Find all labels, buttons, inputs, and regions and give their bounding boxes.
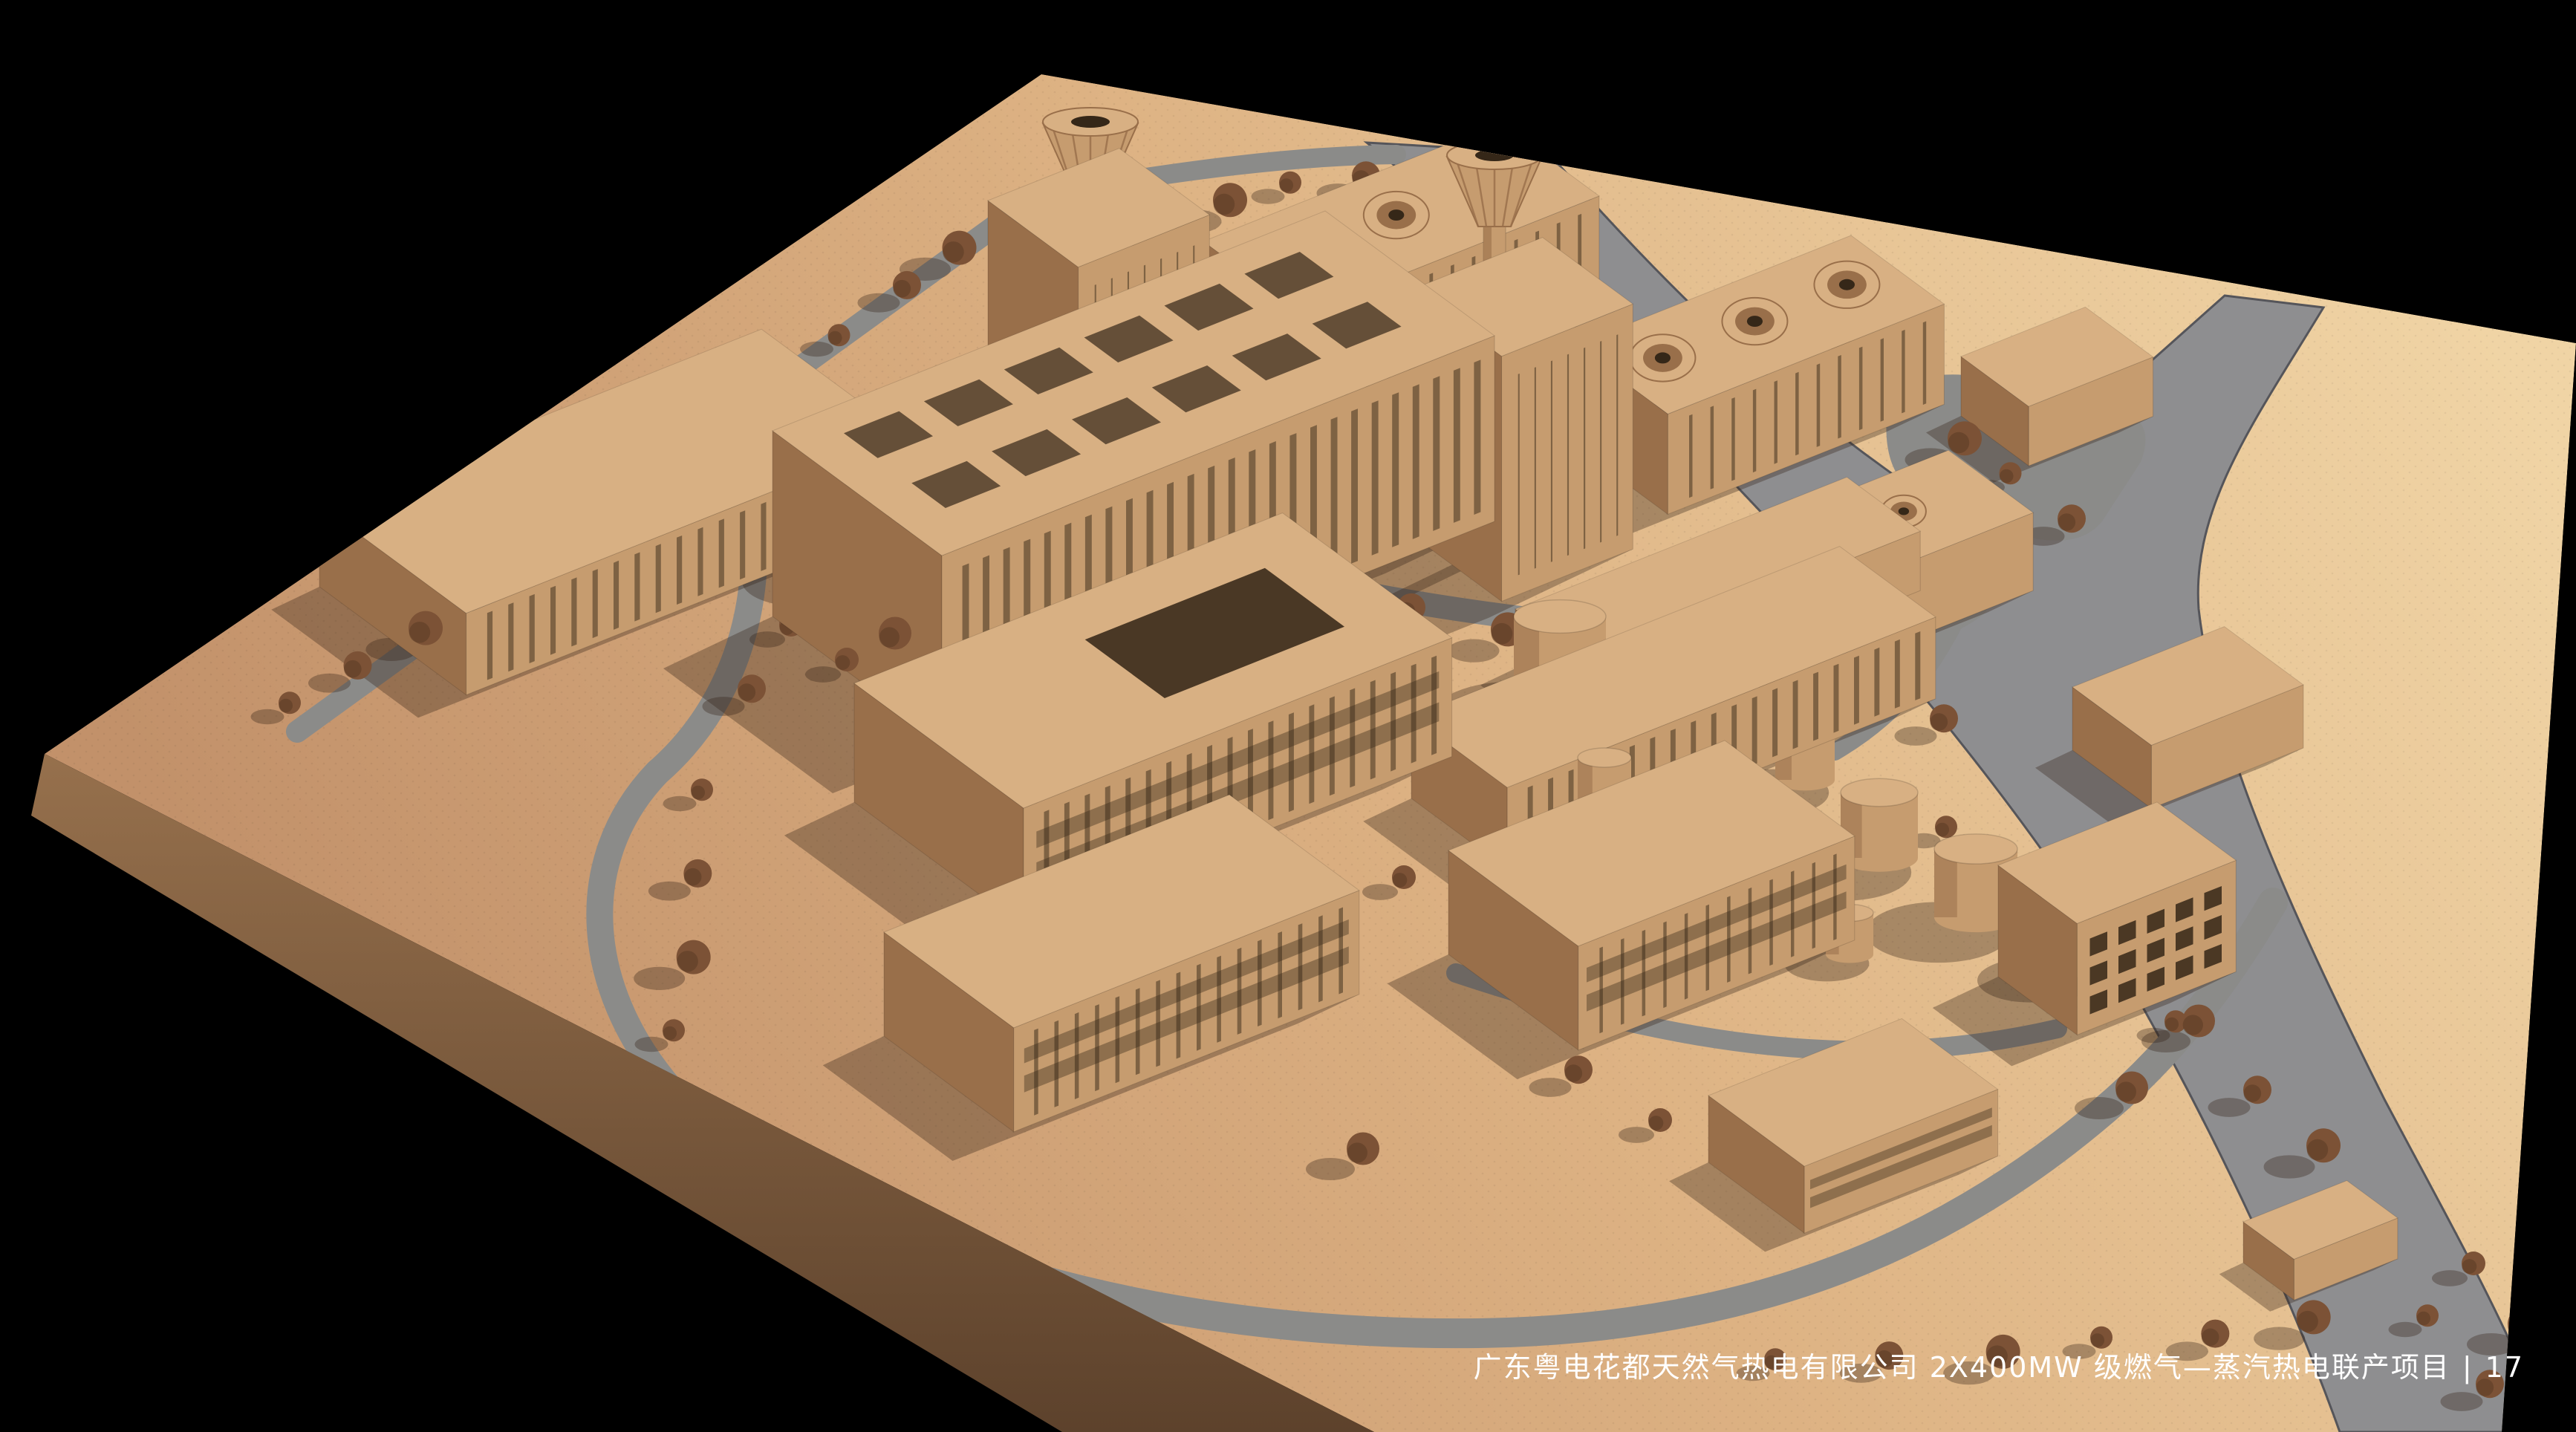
tree-shadow — [308, 674, 351, 693]
facade-fins — [1874, 648, 1879, 717]
facade-fins — [508, 602, 513, 671]
facade-fins — [1711, 406, 1714, 489]
tree-canopy-shade — [1931, 713, 1948, 731]
tank-roof — [1578, 748, 1631, 767]
tree-shadow — [635, 1037, 669, 1052]
tree-canopy-shade — [1347, 1142, 1367, 1162]
caption-page-number: 17 — [2485, 1351, 2524, 1384]
tree-shadow — [800, 342, 833, 357]
tree — [2306, 1128, 2341, 1162]
tree — [2115, 1072, 2148, 1104]
tree-canopy-shade — [1279, 178, 1293, 192]
facade-fins — [656, 544, 661, 613]
tree — [1347, 1133, 1379, 1165]
facade-fins — [1813, 672, 1818, 741]
tree — [677, 940, 711, 974]
tree — [279, 691, 301, 714]
project-caption: 广东粤电花都天然气热电有限公司 2X400MW 级燃气—蒸汽热电联产项目|17 — [1474, 1351, 2524, 1384]
tree-canopy-shade — [344, 660, 362, 678]
tree — [2090, 1327, 2112, 1349]
tree-shadow — [749, 631, 785, 648]
tree — [879, 617, 911, 650]
tree-shadow — [1529, 1078, 1572, 1097]
tree — [344, 651, 372, 680]
tree-shadow — [2141, 1030, 2190, 1052]
tree-canopy-shade — [894, 280, 911, 298]
tree-shadow — [1362, 884, 1398, 900]
tree — [2243, 1075, 2271, 1104]
tree-canopy-shade — [1392, 873, 1407, 888]
tree-canopy-shade — [1214, 194, 1235, 215]
facade-fins — [1454, 368, 1460, 523]
tree-shadow — [2254, 1327, 2305, 1350]
tree-canopy-shade — [691, 786, 705, 800]
tree-canopy-shade — [2462, 1259, 2476, 1274]
tree-canopy-shade — [663, 1026, 677, 1041]
tree-canopy-shade — [2116, 1081, 2136, 1101]
tree — [1279, 172, 1301, 194]
facade-fins — [1859, 347, 1863, 430]
tree-canopy-shade — [943, 241, 964, 263]
tree-canopy-shade — [2416, 1312, 2430, 1326]
facade-fins — [634, 553, 640, 622]
tree — [1392, 865, 1416, 889]
tree-canopy-shade — [1648, 1116, 1663, 1130]
facade-fins — [1834, 664, 1839, 733]
tree-shadow — [663, 796, 697, 811]
tree-canopy-shade — [2000, 469, 2014, 484]
facade-fins — [1854, 656, 1859, 725]
facade-fins — [1915, 631, 1920, 700]
facade-fins — [761, 502, 766, 571]
tree — [943, 231, 977, 265]
tree — [2058, 504, 2086, 533]
facade-fins — [1372, 400, 1379, 556]
tree — [835, 648, 859, 671]
facade-fins — [1616, 334, 1618, 536]
architectural-model-render: 广东粤电花都天然气热电有限公司 2X400MW 级燃气—蒸汽热电联产项目|17 — [0, 0, 2576, 1432]
tree — [409, 611, 443, 645]
tree-canopy-shade — [1935, 823, 1949, 837]
tree-shadow — [2075, 1097, 2124, 1119]
facade-fins — [1413, 384, 1419, 539]
tree-canopy-shade — [835, 655, 850, 670]
tree — [1213, 183, 1247, 217]
funnel-core — [1899, 507, 1909, 515]
funnel-core — [1388, 209, 1404, 221]
facade-fins — [1731, 397, 1735, 481]
facade-fins — [593, 569, 598, 638]
tree-shadow — [2264, 1155, 2315, 1178]
tree-canopy-shade — [2244, 1084, 2262, 1102]
tree-canopy-shade — [2307, 1139, 2329, 1161]
tree — [893, 271, 921, 299]
tree — [738, 674, 766, 703]
facade-fins — [1433, 376, 1440, 531]
funnel-core — [1747, 316, 1763, 327]
tree — [1648, 1108, 1672, 1132]
facade-fins — [1351, 409, 1358, 564]
tree — [2297, 1300, 2331, 1334]
tree-shadow — [251, 709, 284, 724]
facade-fins — [1817, 363, 1821, 447]
tree-canopy-shade — [1948, 432, 1970, 454]
tree-canopy-shade — [684, 868, 702, 886]
tree-canopy-shade — [677, 951, 698, 972]
facade-fins — [1772, 688, 1777, 757]
tree — [2462, 1252, 2485, 1275]
facade-fins — [614, 561, 619, 630]
facade-fins — [1775, 380, 1777, 464]
tree-canopy-shade — [879, 627, 900, 647]
facade-fins — [1795, 372, 1799, 456]
facade-fins — [1838, 355, 1841, 439]
tree — [2201, 1320, 2229, 1348]
facade-fins — [1518, 374, 1520, 575]
tank-roof — [1841, 778, 1918, 806]
tree-shadow — [2208, 1098, 2251, 1117]
tree-shadow — [703, 697, 745, 716]
tree-shadow — [805, 666, 841, 683]
tree-shadow — [1619, 1127, 1654, 1143]
tree-canopy-shade — [738, 683, 756, 701]
facade-fins — [677, 536, 682, 605]
tree-shadow — [2432, 1270, 2468, 1286]
facade-fins — [1895, 639, 1900, 709]
tree-shadow — [634, 967, 685, 990]
caption-title: 广东粤电花都天然气热电有限公司 2X400MW 级燃气—蒸汽热电联产项目 — [1474, 1351, 2450, 1384]
facade-fins — [1752, 696, 1757, 765]
facade-fins — [571, 577, 576, 646]
facade-fins — [719, 518, 724, 588]
tree-canopy-shade — [2202, 1329, 2219, 1347]
facade-fins — [1923, 322, 1926, 406]
tree-canopy-shade — [409, 622, 431, 643]
facade-fins — [1902, 330, 1905, 414]
tree — [1948, 421, 1982, 455]
tree-shadow — [648, 882, 691, 901]
facade-fins — [1881, 338, 1884, 422]
presentation-slide: 广东粤电花都天然气热电有限公司 2X400MW 级燃气—蒸汽热电联产项目|17 — [0, 0, 2576, 1432]
tree-canopy-shade — [2090, 1333, 2104, 1347]
facade-fins — [1474, 359, 1480, 515]
tree — [1935, 816, 1957, 838]
tree-shadow — [858, 293, 900, 313]
facade-fins — [1600, 341, 1601, 543]
tree-canopy-shade — [2058, 513, 2076, 531]
tree-shadow — [1252, 189, 1285, 204]
facade-fins — [550, 586, 556, 655]
tree — [828, 324, 850, 346]
facade-fins — [1535, 367, 1536, 568]
facade-fins — [1392, 392, 1399, 547]
tree-canopy-shade — [279, 699, 293, 713]
funnel-core — [1655, 352, 1671, 363]
facade-fins — [1567, 354, 1569, 556]
tree — [2182, 1005, 2215, 1038]
tree-shadow — [2441, 1392, 2483, 1411]
funnel-core — [1839, 279, 1855, 290]
facade-fins — [1331, 417, 1338, 572]
flue-opening — [1071, 116, 1110, 128]
facade-fins — [487, 611, 492, 680]
facade-fins — [1689, 414, 1693, 498]
tree — [683, 859, 712, 888]
tree-canopy-shade — [2183, 1015, 2203, 1035]
facade-fins — [1793, 680, 1798, 749]
tree — [691, 778, 713, 801]
tree-canopy-shade — [2164, 1018, 2179, 1032]
facade-fins — [1584, 348, 1585, 550]
tree — [2416, 1304, 2439, 1327]
tree — [1564, 1055, 1593, 1084]
tree-shadow — [1895, 726, 1937, 746]
tank-roof — [1514, 600, 1606, 634]
tree-shadow — [1448, 639, 1500, 663]
facade-fins — [740, 510, 745, 579]
tree-canopy-shade — [1492, 623, 1513, 645]
facade-fins — [1753, 389, 1756, 473]
tree-shadow — [1306, 1158, 1355, 1180]
tree-canopy-shade — [1565, 1064, 1583, 1082]
facade-fins — [697, 527, 703, 596]
facade-fins — [530, 594, 535, 663]
caption-divider: | — [2462, 1351, 2473, 1384]
tree-canopy-shade — [2297, 1311, 2318, 1332]
tree-canopy-shade — [828, 331, 842, 345]
facade-fins — [1551, 360, 1552, 562]
scene-root — [0, 0, 2576, 1432]
tree — [2000, 462, 2022, 484]
tank-roof — [1934, 834, 2017, 864]
tree-shadow — [2389, 1322, 2422, 1337]
tree — [663, 1019, 685, 1041]
tree — [1930, 704, 1958, 732]
